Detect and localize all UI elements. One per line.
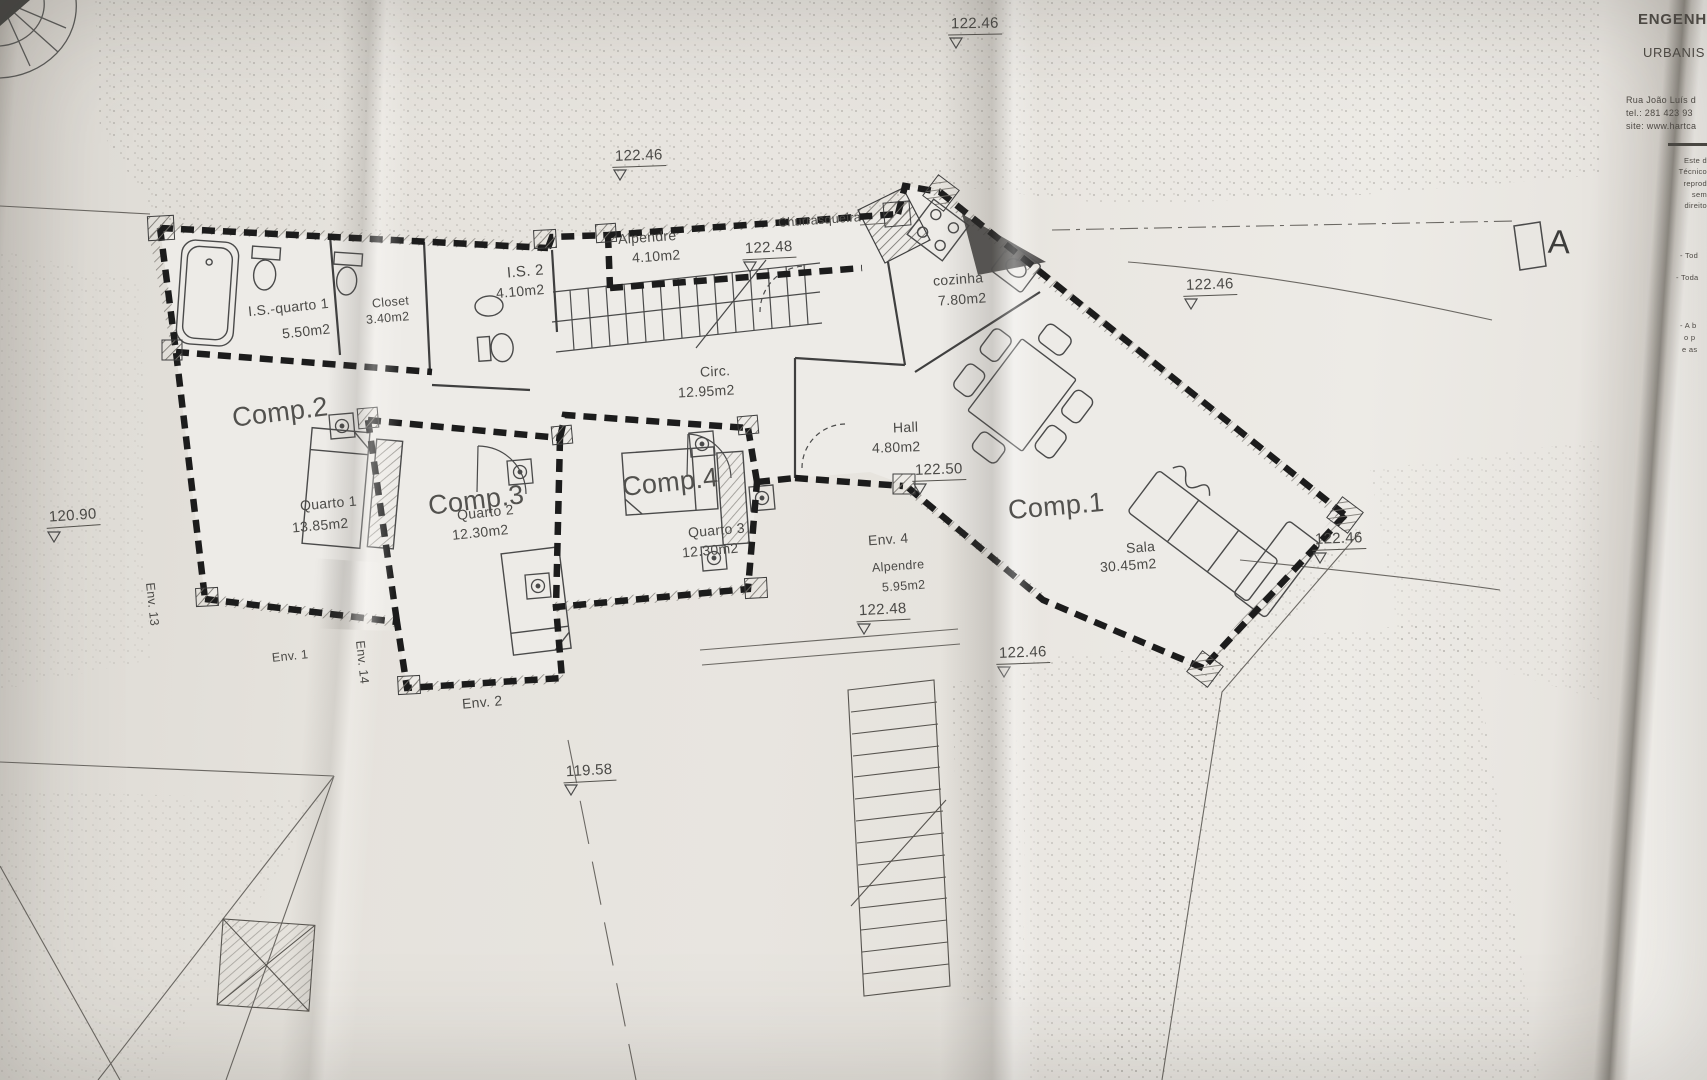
elevation-label: 119.58 xyxy=(563,762,616,783)
elevation-label: 122.50 xyxy=(912,461,966,481)
plan-drawing xyxy=(0,0,1707,1080)
elevation-label: 122.48 xyxy=(742,239,797,260)
titleblock-note: o p xyxy=(1684,332,1695,343)
exterior-stair xyxy=(848,680,950,996)
elevation-label: 122.46 xyxy=(996,644,1050,664)
section-marker-box xyxy=(1514,222,1546,270)
room-area-circ: 12.95m2 xyxy=(678,383,735,401)
titleblock-note: - Tod xyxy=(1680,250,1698,261)
floor-plan-photo: 122.46 122.46 122.48 122.46 122.50 122.4… xyxy=(0,0,1707,1080)
section-marker-a: A xyxy=(1547,224,1571,261)
room-name-sala: Sala xyxy=(1125,539,1155,556)
elevation-label: 120.90 xyxy=(45,506,100,528)
room-label-is2: I.S. 2 xyxy=(506,262,544,282)
corner-fan-sketch xyxy=(0,0,76,78)
titleblock-note: - A b xyxy=(1680,320,1697,331)
titleblock-rule xyxy=(1668,143,1707,146)
outbuilding xyxy=(217,919,315,1011)
elevation-label: 122.46 xyxy=(1183,276,1237,296)
titleblock-note: - Toda xyxy=(1676,272,1699,283)
room-area-hall: 4.80m2 xyxy=(872,439,921,456)
elevation-label: 122.46 xyxy=(1312,530,1366,550)
elevation-label: 122.48 xyxy=(856,601,911,622)
titleblock-note: e as xyxy=(1682,344,1697,355)
titleblock-disclaimer: Este d Técnico reprod sem direito xyxy=(1662,155,1707,211)
room-label-hall: Hall xyxy=(893,420,919,436)
elevation-label: 122.46 xyxy=(948,16,1002,35)
elevation-label: 122.46 xyxy=(612,147,666,167)
titleblock-company: ENGENHA xyxy=(1638,12,1707,29)
titleblock-department: URBANIS xyxy=(1643,46,1705,60)
room-label-circ: Circ. xyxy=(700,363,731,380)
env4-label: Env. 4 xyxy=(868,531,909,549)
titleblock-contact: Rua João Luís d tel.: 281 423 93 site: w… xyxy=(1626,94,1696,133)
